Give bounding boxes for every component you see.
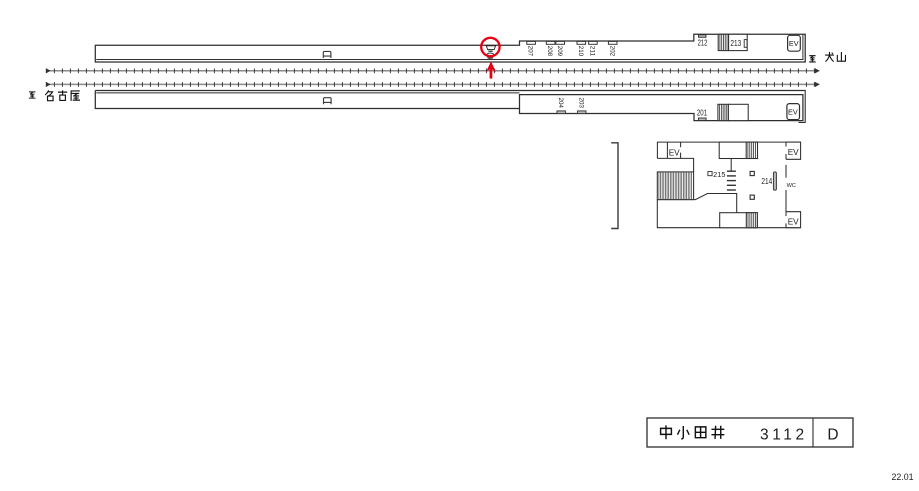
svg-text:EV: EV <box>788 107 798 116</box>
svg-text:208: 208 <box>546 46 553 56</box>
svg-text:EV: EV <box>788 148 799 157</box>
svg-text:201: 201 <box>697 107 707 117</box>
svg-text:D: D <box>827 427 838 444</box>
svg-text:203: 203 <box>577 98 584 108</box>
svg-text:EV: EV <box>669 148 680 157</box>
svg-text:3112: 3112 <box>760 427 808 444</box>
svg-text:209: 209 <box>556 46 563 56</box>
svg-text:215: 215 <box>713 170 725 179</box>
svg-text:22.01: 22.01 <box>891 472 913 482</box>
svg-text:EV: EV <box>788 218 799 227</box>
svg-text:213: 213 <box>730 38 741 48</box>
svg-text:214: 214 <box>761 177 772 186</box>
svg-text:211: 211 <box>589 46 596 57</box>
svg-text:207: 207 <box>527 46 534 56</box>
svg-text:212: 212 <box>698 37 708 47</box>
svg-text:204: 204 <box>557 98 564 108</box>
svg-text:202: 202 <box>608 46 615 56</box>
svg-text:EV: EV <box>789 39 799 48</box>
svg-text:210: 210 <box>577 46 584 56</box>
svg-text:WC: WC <box>787 183 796 189</box>
